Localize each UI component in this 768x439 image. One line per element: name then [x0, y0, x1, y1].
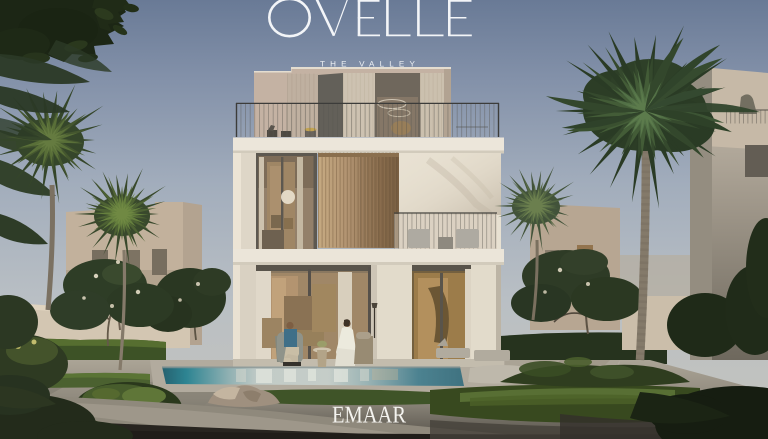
svg-text:EMAAR: EMAAR [332, 403, 406, 429]
svg-text:THE VALLEY: THE VALLEY [320, 60, 420, 69]
